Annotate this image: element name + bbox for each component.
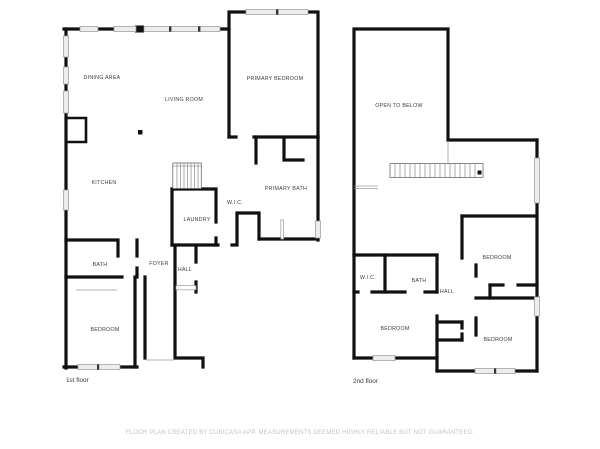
wall-post (135, 26, 144, 33)
room-labels-floor-1: DINING AREALIVING ROOMPRIMARY BEDROOMKIT… (84, 75, 308, 333)
room-label: OPEN TO BELOW (375, 103, 423, 109)
room-label: LAUNDRY (184, 217, 211, 223)
disclaimer-text: FLOOR PLAN CREATED BY CUBICASA APP. MEAS… (126, 430, 474, 436)
floor-label: 1st floor (66, 377, 90, 384)
room-label: DINING AREA (84, 75, 121, 81)
walls-floor-2 (354, 29, 537, 371)
room-label: HALL (178, 267, 192, 273)
room-label: PRIMARY BATH (265, 186, 307, 192)
room-label: BEDROOM (483, 337, 512, 343)
room-label: BEDROOM (90, 327, 119, 333)
room-label: BEDROOM (380, 326, 409, 332)
second-floor-plan: OPEN TO BELOWBEDROOMW.I.C.BATHHALLBEDROO… (353, 29, 540, 385)
railing-line (354, 186, 378, 189)
floor-plan-image: DINING AREALIVING ROOMPRIMARY BEDROOMKIT… (0, 0, 600, 449)
room-label: FOYER (149, 261, 169, 267)
room-label: W.I.C. (360, 275, 376, 281)
room-label: LIVING ROOM (165, 97, 203, 103)
floor-label: 2nd floor (353, 378, 379, 385)
room-label: W.I.C. (227, 200, 243, 206)
first-floor-plan: DINING AREALIVING ROOMPRIMARY BEDROOMKIT… (63, 9, 320, 384)
room-label: BATH (93, 262, 108, 268)
bath-door (281, 220, 284, 239)
front-door (176, 286, 196, 290)
room-label: HALL (440, 289, 454, 295)
fireplace (66, 118, 86, 142)
room-label: PRIMARY BEDROOM (247, 76, 304, 82)
column (138, 130, 143, 135)
stairs-icon (354, 141, 483, 189)
room-label: BATH (412, 278, 427, 284)
stairs-icon (173, 163, 202, 189)
room-label: KITCHEN (92, 180, 117, 186)
room-label: BEDROOM (482, 255, 511, 261)
